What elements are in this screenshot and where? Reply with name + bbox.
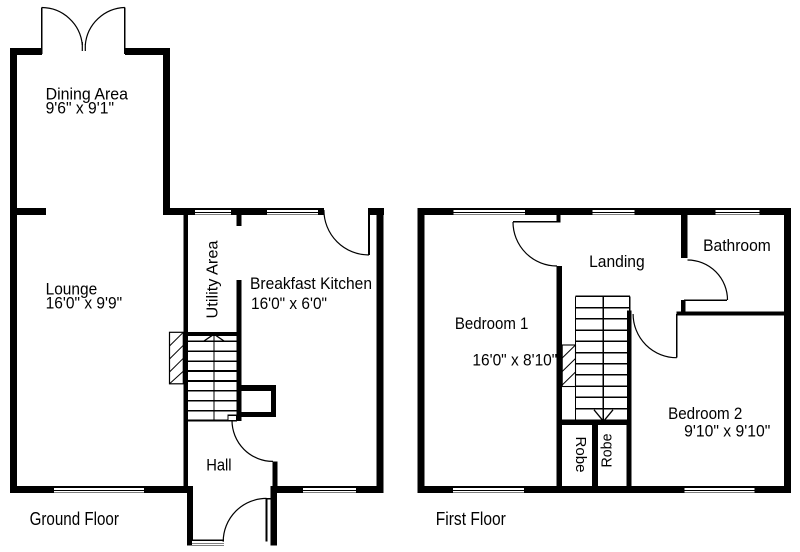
svg-text:9'6" x 9'1": 9'6" x 9'1" xyxy=(46,99,115,117)
svg-text:Landing: Landing xyxy=(589,253,645,271)
svg-text:Bedroom 1: Bedroom 1 xyxy=(455,315,529,333)
svg-text:Robe: Robe xyxy=(599,434,616,468)
svg-text:Utility Area: Utility Area xyxy=(205,240,222,318)
svg-text:16'0" x 8'10": 16'0" x 8'10" xyxy=(472,352,557,370)
svg-text:Bedroom 2: Bedroom 2 xyxy=(668,405,742,423)
svg-text:Breakfast Kitchen: Breakfast Kitchen xyxy=(250,275,372,293)
svg-text:Robe: Robe xyxy=(572,437,589,473)
svg-text:Bathroom: Bathroom xyxy=(703,237,771,255)
svg-text:16'0" x 9'9": 16'0" x 9'9" xyxy=(46,295,123,313)
svg-text:9'10" x 9'10": 9'10" x 9'10" xyxy=(684,423,770,441)
svg-text:First Floor: First Floor xyxy=(436,509,506,529)
svg-text:Hall: Hall xyxy=(206,456,231,474)
svg-text:Ground Floor: Ground Floor xyxy=(30,509,119,529)
svg-text:16'0" x 6'0": 16'0" x 6'0" xyxy=(251,295,327,313)
